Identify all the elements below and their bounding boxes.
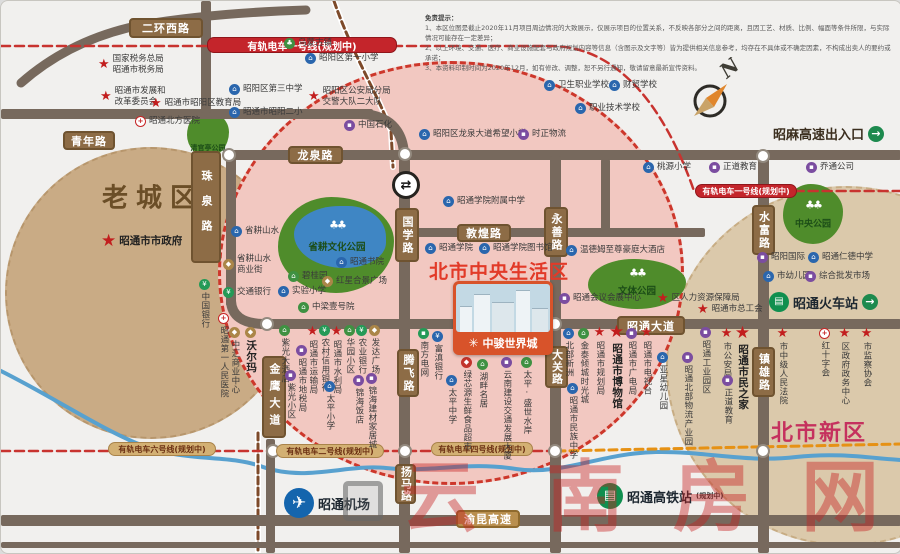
company-icon: ▪ [344,120,355,131]
map-poi: ▪乔通公司 [806,162,854,173]
poi-label: 湖畔名居 [477,372,488,408]
poi-label: 太平·盛世水岸 [521,370,532,435]
company-icon: ▪ [682,352,693,363]
map-poi: ★昭通市昭阳区教育局 [150,97,241,110]
company-icon: ▪ [626,328,637,339]
trees-icon: ♣♣ [805,199,821,212]
company-icon: ▪ [353,375,364,386]
map-poi: ▪昭通北部物流产业园 [680,352,695,446]
poi-label: 红星合景广场 [336,276,387,287]
watermark-logo-box [343,481,383,521]
poi-label: 绿芯源生鲜食品超市 [461,370,472,451]
interchange-icon: ⇄ [392,171,420,199]
poi-label: 卫生职业学校 [558,80,609,91]
shopping-icon: ◆ [245,327,256,338]
poi-label: 昭通市电视台 [641,341,652,395]
poi-label: 发达广场 [369,338,380,374]
poi-label: 市中级人民法院 [777,342,788,405]
school-icon: ⌂ [305,53,316,64]
poi-label: 省耕山水 商业街 [237,254,271,275]
poi-label: 财贸学校 [623,80,657,91]
project-rendering [456,284,550,332]
poi-label: 锦海饭店 [353,388,364,424]
poi-label: 中国银行 [199,292,210,328]
train-station-label: 昭通火车站 [793,293,858,312]
school-icon: ⌂ [425,243,436,254]
school-icon: ⌂ [657,352,668,363]
poi-label: 昭通书院 [350,257,384,268]
watermark-char: 房 [673,459,751,537]
star-icon: ★ [308,90,320,103]
hospital-cross-icon: + [819,328,830,339]
poi-label: 职业技术学校 [589,103,640,114]
map-poi: ★昭通市博物馆 [609,324,624,409]
project-card: ✳ 中骏世界城 [453,281,553,355]
poi-label: 昭通北部物流产业园 [682,365,693,446]
map-poi: ⌂职业技术学校 [575,103,640,114]
highway-exit-label: 昭麻高速出入口 [773,124,864,143]
map-poi: ◆发达广场 [367,325,382,374]
poi-label: 红十字会 [819,341,830,377]
star-icon: ★ [697,303,709,316]
map-poi: ⌂中梁壹号院 [298,302,355,313]
star-icon: ★ [98,58,110,71]
star-icon: ★ [100,90,112,103]
trees-icon: ♣♣ [329,219,345,232]
map-poi: ⌂昭通学院图书馆 [479,243,553,254]
poi-label: 昭阳区第三中学 [243,84,303,95]
poi-label: 沃尔玛 [244,340,257,373]
map-poi: ◆绿芯源生鲜食品超市 [459,357,474,451]
poi-label: 昭阳区公安局分局 交警大队二大队 [323,86,391,107]
map-poi: ⌂太平中学 [444,375,459,424]
map-poi: ⌂桃源小学 [643,162,691,173]
poi-label: 紫光小区 [285,383,296,419]
school-icon: ⌂ [575,103,586,114]
residence-icon: ⌂ [288,271,299,282]
bank-icon: ¥ [223,287,234,298]
star-icon: ★ [721,327,733,340]
star-icon: ★ [861,327,873,340]
school-icon: ⌂ [419,129,430,140]
school-icon: ⌂ [229,84,240,95]
poi-label: 昭通市市政府 [119,235,182,248]
star-icon: ★ [331,325,343,338]
star-icon: ★ [735,325,750,342]
park-label: 中央公园 [795,217,831,230]
town-icon: ♣ [284,38,295,49]
train-icon: ▤ [769,292,789,312]
school-icon: ⌂ [336,257,347,268]
residence-icon: ⌂ [279,325,290,336]
company-icon: ▪ [757,252,768,263]
road-label: 青年路 [63,131,115,150]
map-poi: ⌂实验小学 [278,286,326,297]
train-arrow-icon: → [862,294,878,310]
poi-label: 昭通市昭阳二小 [243,107,303,118]
train-station: ▤ 昭通火车站 → [769,292,878,312]
school-icon: ⌂ [278,286,289,297]
map-poi: ▪紫光小区 [283,370,298,419]
residence-icon: ⌂ [578,328,589,339]
school-icon: ⌂ [567,383,578,394]
map-poi: ▪中国石化 [344,120,392,131]
poi-label: 市监察协会 [861,342,872,387]
poi-label: 昭阳国际 [771,252,805,263]
road-junction [398,147,412,161]
hospital-cross-icon: + [135,116,146,127]
map-poi: ¥中国银行 [197,279,212,328]
plane-icon: ✈ [284,488,314,518]
residence-icon: ⌂ [477,359,488,370]
watermark-char: 云 [401,459,479,537]
disclaimer-line: 3、本资料印制时间为2020年12月，如有修改、调整，恕不另行通知，敬请留意最新… [425,63,895,73]
company-icon: ▪ [806,162,817,173]
map-poi: ▪昭通会议会展中心 [559,293,641,304]
map-poi: ◆省耕山水 商业街 [223,254,271,275]
poi-label: 昭通仁德中学 [822,252,873,263]
poi-label: 实验小学 [292,286,326,297]
poi-label: 中汇商业中心 [229,340,240,394]
star-icon: ★ [657,292,669,305]
star-icon: ★ [839,327,851,340]
map-poi: ⌂昭通学院附属中学 [443,196,525,207]
map-poi: ⌂财贸学校 [609,80,657,91]
poi-label: 时正物流 [532,129,566,140]
poi-label: 锦海建材家居城 [366,386,377,449]
map-poi: ♣乌蒙古镇 [284,38,332,49]
poi-label: 昭阳区第一小学 [319,53,379,64]
poi-label: 昭通市总工会 [712,304,763,315]
poi-label: 中梁壹号院 [312,302,355,313]
map-poi: +昭通北方医院 [135,116,200,127]
map-poi: ⌂亚星幼儿园 [655,352,670,410]
residence-icon: ⌂ [521,357,532,368]
map-poi: ⌂太平小学 [322,381,337,430]
map-poi: ★国家税务总局 昭通市税务局 [98,54,164,75]
poi-label: 温德姆至尊豪庭大酒店 [580,245,665,256]
road-label: 珠泉路 [191,151,221,263]
map-poi: ▪锦海建材家居城 [364,373,379,449]
map-poi: ⌂北部新洲 [561,328,576,377]
map-poi: ▪昭通工业园区 [698,327,713,394]
poi-label: 昭通市民之家 [736,344,749,410]
map-poi: ★市中级人民法院 [775,327,790,405]
supermarket-icon: ◆ [461,357,472,368]
poi-label: 太平中学 [446,388,457,424]
road-junction [260,317,274,331]
map-poi: ⌂昭阳区第三中学 [229,84,303,95]
poi-label: 北部新洲 [563,341,574,377]
map-poi: ★昭通市市政府 [101,233,182,250]
map-poi: ¥富滇银行 [430,331,445,380]
highway-exit: 昭麻高速出入口 → [773,124,884,143]
map-poi: ⌂卫生职业学校 [544,80,609,91]
company-icon: ▪ [722,375,733,386]
poi-label: 综合批发市场 [819,271,870,282]
watermark-char: 网 [801,459,879,537]
map-poi: ★昭通市规划局 [592,326,607,395]
project-name: 中骏世界城 [483,335,538,351]
shopping-icon: ◆ [229,327,240,338]
poi-label: 云南建设交通发展大厦 [501,370,512,460]
star-icon: ★ [609,324,624,341]
utility-icon: ▪ [418,328,429,339]
star-icon: ★ [641,326,653,339]
school-icon: ⌂ [229,107,240,118]
star-icon: ★ [101,233,116,250]
company-icon: ▪ [518,129,529,140]
school-icon: ⌂ [443,196,454,207]
company-icon: ▪ [366,373,377,384]
school-icon: ⌂ [763,271,774,282]
trees-icon: ♣♣ [629,267,645,280]
watermark-char: 南 [546,459,624,537]
poi-label: 昭通北方医院 [149,116,200,127]
poi-label: 昭通会议会展中心 [573,293,641,304]
map-poi: ⌂昭通市昭阳二小 [229,107,303,118]
central-living-area-label: 北市中央生活区 [429,257,569,284]
poi-label: 太平小学 [324,394,335,430]
map-poi: ★区政府政务中心 [837,327,852,405]
company-icon: ▪ [805,271,816,282]
map-poi: ¥交通银行 [223,287,271,298]
road-label: 二环西路 [129,18,203,38]
residence-icon: ⌂ [298,302,309,313]
poi-label: 昭通学院 [439,243,473,254]
road-label: 镇雄路 [752,347,775,397]
school-icon: ⌂ [231,226,242,237]
poi-label: 交通银行 [237,287,271,298]
map-poi: ★昭通市民之家 [735,325,750,410]
map-poi: +红十字会 [817,328,832,377]
poi-label: 桃源小学 [657,162,691,173]
map-poi: ★市监察协会 [859,327,874,387]
poi-label: 昭通市规划局 [594,341,605,395]
poi-label: 省耕山水 [245,226,279,237]
map-poi: ▪时正物流 [518,129,566,140]
tram-line-label: 有轨电车一号线(规划中) [695,184,797,198]
company-icon: ▪ [559,293,570,304]
poi-label: 昭通市博物馆 [610,343,623,409]
road-label: 敦煌路 [457,224,511,242]
map-poi: ◆沃尔玛 [243,327,258,373]
road-label: 水富路 [752,205,775,255]
map-poi: ★市公安局 [719,327,734,378]
school-icon: ⌂ [446,375,457,386]
bank-icon: ¥ [432,331,443,342]
map-poi: ▪正道教育 [709,162,757,173]
poi-label: 昭阳区龙泉大道希望小学 [433,129,527,140]
road-label: 国学路 [395,208,419,262]
map-poi: ★昭通市总工会 [697,303,763,316]
school-icon: ⌂ [544,80,555,91]
poi-label: 南方电网 [418,341,429,377]
school-icon: ⌂ [563,328,574,339]
disclaimer-line: 2、以上环境、交通、医疗、商业设施配套与政府规划内容等信息（含图示及文字等）皆为… [425,43,895,63]
park-label: 省耕文化公园 [308,239,365,253]
map-poi: ⌂太平·盛世水岸 [519,357,534,435]
map-poi: ⌂昭通学院 [425,243,473,254]
star-icon: ★ [777,327,789,340]
poi-label: 正道教育 [722,388,733,424]
star-icon: ★ [150,97,162,110]
map-poi: ▪昭通市广电局 [624,328,639,395]
map-poi: ▪正道教育 [720,375,735,424]
company-icon: ▪ [709,162,720,173]
poi-label: 市公安局 [721,342,732,378]
disclaimer: 免责提示： 1、本区位图是截止2020年11月项目周边情况的大致展示，仅展示项目… [425,13,895,73]
school-icon: ⌂ [643,162,654,173]
shopping-icon: ◆ [369,325,380,336]
poi-label: 昭通工业园区 [700,340,711,394]
school-icon: ⌂ [808,252,819,263]
poi-label: 昭通学院图书馆 [493,243,553,254]
location-map: 免责提示： 1、本区位图是截止2020年11月项目周边情况的大致展示，仅展示项目… [0,0,900,554]
map-poi: ⌂昭阳区龙泉大道希望小学 [419,129,527,140]
poi-label: 农业银行 [356,338,367,374]
map-poi: ⌂省耕山水 [231,226,279,237]
poi-label: 国家税务总局 昭通市税务局 [113,54,164,75]
poi-label: 昭通市民族中学 [567,396,578,459]
zone-label-north-new-district: 北市新区 [771,415,867,447]
map-poi: ⌂昭通书院 [336,257,384,268]
poi-label: 乔通公司 [820,162,854,173]
map-poi: ◆红星合景广场 [322,276,387,287]
bank-icon: ¥ [356,325,367,336]
company-icon: ▪ [501,357,512,368]
poi-label: 区政府政务中心 [839,342,850,405]
map-poi: ⌂昭阳区第一小学 [305,53,379,64]
zone-label-old-town: 老城区 [102,178,204,215]
map-poi: ▪南方电网 [416,328,431,377]
road-segment [601,159,610,231]
highway-arrow-icon: → [868,126,884,142]
poi-label: 昭通学院附属中学 [457,196,525,207]
compass-n-label: N [714,57,745,83]
company-icon: ▪ [700,327,711,338]
poi-label: 正道教育 [723,162,757,173]
road-junction [222,148,236,162]
map-poi: ▪综合批发市场 [805,271,870,282]
map-poi: ⌂市幼儿园 [763,271,811,282]
school-icon: ⌂ [324,381,335,392]
school-icon: ⌂ [609,80,620,91]
hospital-cross-icon: + [218,313,229,324]
map-poi: ▪云南建设交通发展大厦 [499,357,514,460]
disclaimer-line: 1、本区位图是截止2020年11月项目周边情况的大致展示，仅展示项目的位置关系，… [425,23,895,43]
poi-label: 富滇银行 [432,344,443,380]
road-junction [756,149,770,163]
shopping-icon: ◆ [223,259,234,270]
map-poi: ▪昭阳国际 [757,252,805,263]
poi-label: 乌蒙古镇 [298,38,332,49]
disclaimer-title: 免责提示： [425,14,458,22]
poi-label: 亚星幼儿园 [657,365,668,410]
poi-label: 中国石化 [358,120,392,131]
hotel-icon: ⌂ [566,245,577,256]
map-poi: ◆中汇商业中心 [227,327,242,394]
map-poi: ⌂温德姆至尊豪庭大酒店 [566,245,665,256]
map-poi: ★昭通市电视台 [639,326,654,395]
map-poi: ⌂昭通仁德中学 [808,252,873,263]
star-icon: ★ [594,326,606,339]
map-poi: ⌂昭通市民族中学 [565,383,580,459]
map-poi: ⌂湖畔名居 [475,359,490,408]
company-icon: ▪ [285,370,296,381]
compass-icon: N [677,57,749,121]
road-junction [756,444,770,458]
school-icon: ⌂ [479,243,490,254]
poi-label: 昭通市广电局 [626,341,637,395]
map-poi: ★昭阳区公安局分局 交警大队二大队 [308,86,391,107]
tram-line-label: 有轨电车六号线(规划中) [108,442,216,456]
zhongjun-logo-icon: ✳ [468,336,478,350]
road-label: 龙泉路 [288,146,343,164]
bank-icon: ¥ [199,279,210,290]
